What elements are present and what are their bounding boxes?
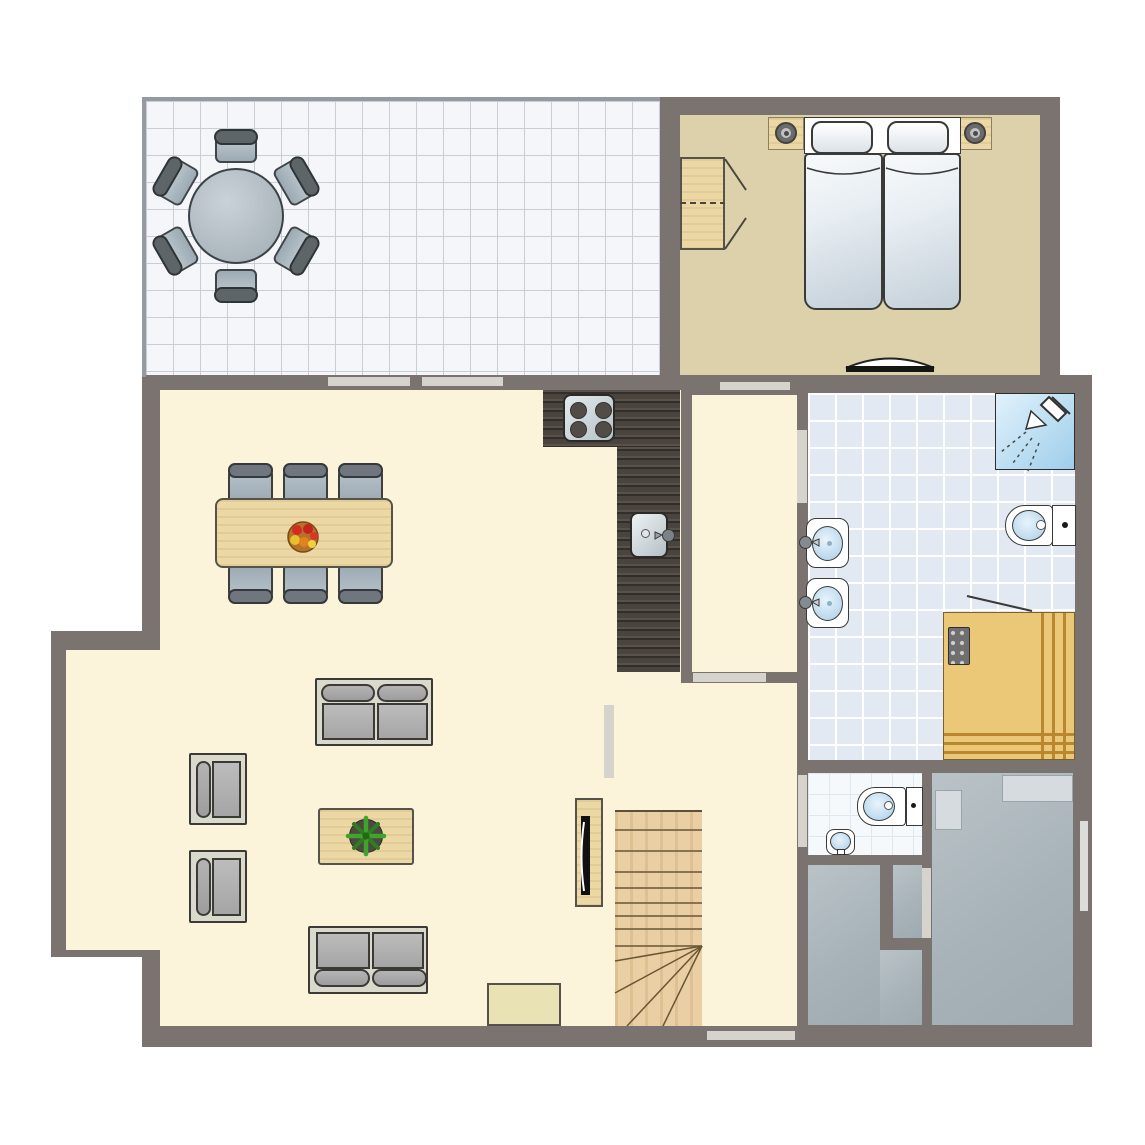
- bathroom-faucet: [799, 536, 812, 549]
- terrace-round-table: [188, 168, 284, 264]
- stove-burner: [595, 402, 612, 419]
- toilet-drain: [1036, 520, 1046, 530]
- storage-door: [922, 868, 931, 938]
- stove-burner: [570, 402, 587, 419]
- dining-table: [215, 498, 393, 568]
- floor-plan: [0, 0, 1145, 1145]
- armchair-back-cushion: [196, 761, 211, 818]
- terrace-sliding-door-1: [328, 377, 410, 386]
- stairs: [615, 810, 702, 1026]
- sofa-back-cushion: [321, 684, 375, 702]
- front-door: [707, 1031, 795, 1040]
- armchair-seat: [212, 761, 241, 818]
- floor-chest: [487, 983, 561, 1026]
- storage-nook-floor: [893, 865, 922, 938]
- utility-shelf: [935, 790, 962, 830]
- stove-burner: [595, 421, 612, 438]
- kitchen-faucet: [662, 529, 675, 542]
- wardrobe: [680, 157, 725, 250]
- kitchen-sink-drain: [641, 529, 650, 538]
- toilet-button: [1062, 522, 1068, 528]
- sofa-seat: [316, 932, 370, 969]
- shower: [995, 393, 1075, 470]
- terrace-sliding-door-2: [422, 377, 503, 386]
- utility-window: [1080, 821, 1088, 911]
- plant-pot: [349, 819, 383, 853]
- tv: [581, 816, 590, 895]
- bathroom-faucet: [799, 596, 812, 609]
- dining-chair: [338, 564, 383, 602]
- wc-door: [798, 775, 807, 847]
- dining-chair: [228, 564, 273, 602]
- kitchen-counter-side: [617, 447, 680, 672]
- armchair-back-cushion: [196, 858, 211, 916]
- sofa-back-cushion: [377, 684, 428, 702]
- corridor-hall-door: [693, 673, 766, 682]
- sofa-seat: [377, 703, 428, 740]
- stove-burner: [570, 421, 587, 438]
- storage-a2-floor: [880, 950, 922, 1025]
- sofa-seat: [372, 932, 424, 969]
- living-room-hall-door: [604, 705, 614, 778]
- sofa-back-cushion: [314, 969, 370, 987]
- mattress: [883, 153, 961, 310]
- bathroom-sink-drain: [827, 541, 832, 546]
- utility-shelf: [1002, 775, 1073, 802]
- pillow: [811, 121, 873, 154]
- bedroom-door: [720, 382, 790, 390]
- wc-faucet: [837, 849, 845, 855]
- living-room-floor-bump: [66, 650, 160, 950]
- sofa-back-cushion: [372, 969, 427, 987]
- bathroom-sink-drain: [827, 601, 832, 606]
- corridor-floor: [692, 395, 797, 672]
- sauna-bench-bottom: [944, 733, 1074, 759]
- terrace-chair: [215, 133, 257, 163]
- bedside-lamp-dot: [973, 131, 978, 136]
- sofa-seat: [322, 703, 375, 740]
- sauna-heater: [948, 627, 970, 665]
- bathroom-door: [797, 430, 807, 503]
- bedside-lamp-dot: [784, 131, 789, 136]
- wc-toilet-button: [911, 803, 916, 808]
- pillow: [887, 121, 949, 154]
- dining-chair: [283, 564, 328, 602]
- mattress: [804, 153, 883, 310]
- storage-a-floor: [808, 865, 880, 1025]
- wc-toilet-drain: [884, 801, 893, 810]
- terrace-chair: [215, 269, 257, 299]
- armchair-seat: [212, 858, 241, 916]
